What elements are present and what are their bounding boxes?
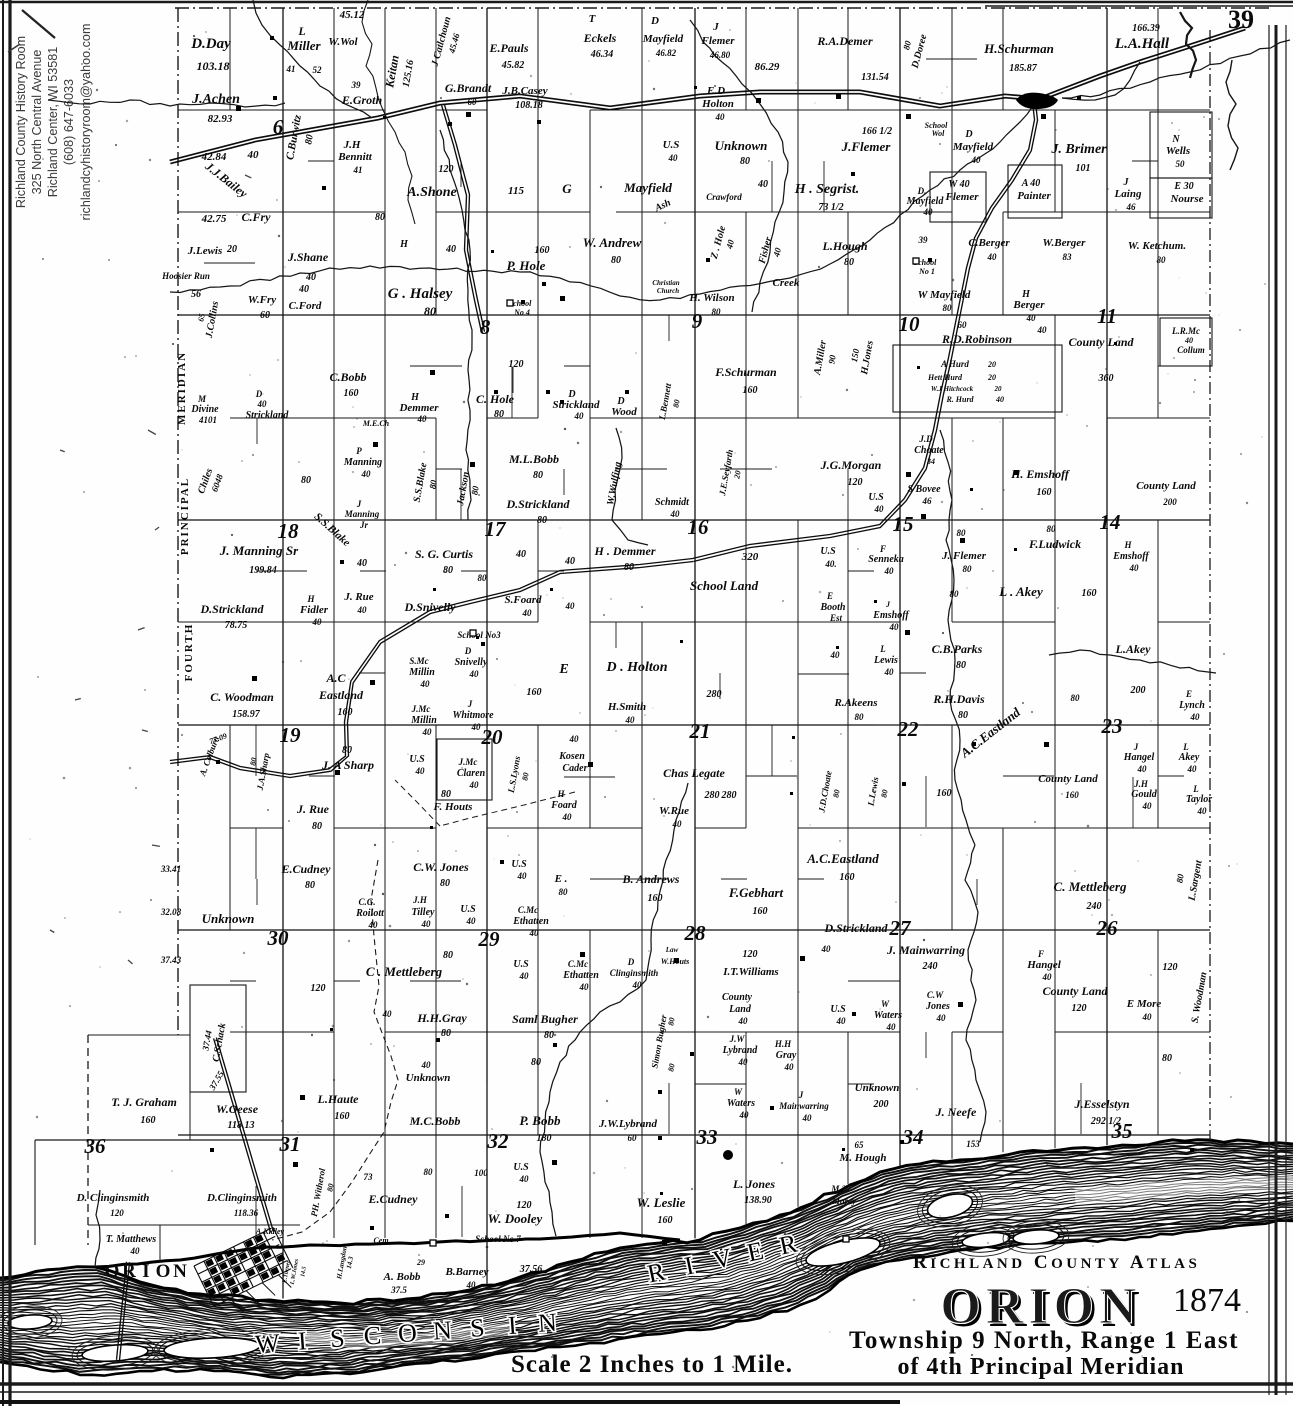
svg-text:F: F xyxy=(879,544,886,554)
svg-text:N: N xyxy=(1171,134,1180,145)
svg-text:Manning: Manning xyxy=(343,457,382,468)
svg-text:240: 240 xyxy=(922,961,938,972)
svg-text:D: D xyxy=(464,646,472,656)
svg-text:160: 160 xyxy=(648,893,663,904)
svg-text:J.W: J.W xyxy=(729,1034,746,1044)
svg-text:40: 40 xyxy=(672,819,683,829)
svg-text:80: 80 xyxy=(494,409,504,420)
svg-text:C. Hole: C. Hole xyxy=(476,392,515,406)
svg-text:40: 40 xyxy=(884,667,895,677)
svg-text:40: 40 xyxy=(1142,801,1153,811)
svg-text:Morey: Morey xyxy=(831,1196,857,1206)
svg-text:40.: 40. xyxy=(824,559,836,569)
svg-text:Wells: Wells xyxy=(1166,145,1190,157)
svg-text:PRINCIPAL: PRINCIPAL xyxy=(179,477,191,555)
svg-text:40: 40 xyxy=(368,920,379,930)
svg-text:46: 46 xyxy=(922,496,933,506)
svg-text:W. Ketchum.: W. Ketchum. xyxy=(1128,240,1186,252)
svg-text:Roilott: Roilott xyxy=(355,908,385,919)
svg-text:40: 40 xyxy=(569,734,580,744)
svg-text:Christian: Christian xyxy=(652,279,679,287)
svg-text:40: 40 xyxy=(738,1057,749,1067)
svg-text:160: 160 xyxy=(937,788,952,799)
svg-text:40: 40 xyxy=(312,617,323,627)
svg-text:F.Schurman: F.Schurman xyxy=(714,365,777,379)
svg-text:40: 40 xyxy=(836,1016,847,1026)
svg-text:80: 80 xyxy=(520,772,530,781)
svg-text:1874: 1874 xyxy=(1173,1282,1241,1319)
svg-text:W: W xyxy=(254,1328,281,1359)
svg-text:County Land: County Land xyxy=(1068,335,1134,349)
svg-text:40: 40 xyxy=(361,469,372,479)
svg-text:E: E xyxy=(826,591,833,601)
svg-text:Bennitt: Bennitt xyxy=(337,151,373,163)
svg-text:41: 41 xyxy=(286,64,296,74)
svg-text:46.80: 46.80 xyxy=(709,50,731,60)
svg-text:MERIDIAN: MERIDIAN xyxy=(176,351,188,425)
svg-text:M.C.Bobb: M.C.Bobb xyxy=(409,1114,461,1128)
svg-text:83: 83 xyxy=(1063,252,1073,262)
svg-text:Hangel: Hangel xyxy=(1123,752,1155,763)
svg-text:153: 153 xyxy=(966,1139,980,1149)
svg-text:M.L.Bobb: M.L.Bobb xyxy=(508,452,559,466)
svg-text:160: 160 xyxy=(535,245,550,256)
svg-text:W.J Hitchcock: W.J Hitchcock xyxy=(931,385,974,393)
svg-text:J: J xyxy=(798,1090,804,1100)
svg-text:80: 80 xyxy=(248,757,258,766)
svg-text:D.Strickland: D.Strickland xyxy=(505,497,570,511)
svg-text:10: 10 xyxy=(899,312,921,336)
svg-text:H: H xyxy=(306,594,315,604)
svg-text:30: 30 xyxy=(267,926,290,950)
svg-text:40: 40 xyxy=(522,608,533,618)
svg-text:J. Rue: J. Rue xyxy=(343,591,373,603)
svg-text:40: 40 xyxy=(670,509,681,519)
svg-text:40: 40 xyxy=(1137,764,1148,774)
svg-text:160: 160 xyxy=(1082,588,1097,599)
svg-text:N: N xyxy=(537,1308,558,1338)
svg-text:40: 40 xyxy=(1129,563,1140,573)
svg-text:FOURTH: FOURTH xyxy=(183,623,195,682)
svg-text:W 40: W 40 xyxy=(948,179,969,190)
svg-text:Saml Bugher: Saml Bugher xyxy=(512,1012,578,1026)
svg-text:120: 120 xyxy=(1072,1003,1087,1014)
svg-text:120: 120 xyxy=(439,164,454,175)
svg-text:L.Haute: L.Haute xyxy=(317,1092,360,1106)
svg-text:20: 20 xyxy=(994,385,1003,393)
svg-text:Strickland: Strickland xyxy=(246,410,290,421)
svg-text:80: 80 xyxy=(957,528,967,538)
svg-text:E .: E . xyxy=(554,873,568,885)
svg-text:F: F xyxy=(1037,949,1044,959)
svg-text:80: 80 xyxy=(305,880,315,891)
svg-text:160: 160 xyxy=(338,707,353,718)
svg-text:46: 46 xyxy=(1126,202,1137,212)
svg-text:Law: Law xyxy=(665,946,679,954)
svg-text:180: 180 xyxy=(537,1133,552,1144)
svg-text:A.Kidley: A.Kidley xyxy=(255,1227,285,1236)
svg-text:6: 6 xyxy=(273,115,284,139)
svg-text:L: L xyxy=(1182,742,1189,752)
svg-text:RICHLAND COUNTY ATLAS: RICHLAND COUNTY ATLAS xyxy=(913,1252,1200,1273)
svg-text:15: 15 xyxy=(893,512,914,536)
svg-text:U.S: U.S xyxy=(409,754,425,765)
svg-text:199.84: 199.84 xyxy=(249,565,277,576)
svg-text:101: 101 xyxy=(1076,163,1091,174)
svg-text:Gray: Gray xyxy=(776,1050,797,1061)
svg-text:80: 80 xyxy=(342,745,352,756)
svg-text:W Mayfield: W Mayfield xyxy=(918,289,971,301)
svg-text:60: 60 xyxy=(260,310,270,321)
svg-text:45.12: 45.12 xyxy=(339,9,365,21)
svg-text:80: 80 xyxy=(443,950,453,961)
svg-text:O: O xyxy=(156,1261,171,1282)
svg-text:86.29: 86.29 xyxy=(755,61,780,73)
svg-text:80: 80 xyxy=(441,789,451,800)
svg-text:richlandcyhistoryroom@yahoo.co: richlandcyhistoryroom@yahoo.com xyxy=(79,24,93,221)
svg-text:34: 34 xyxy=(926,457,935,466)
svg-text:26: 26 xyxy=(1096,916,1119,940)
svg-text:28: 28 xyxy=(684,921,707,945)
svg-text:80: 80 xyxy=(559,887,569,897)
svg-text:School No3: School No3 xyxy=(457,630,501,640)
svg-text:Kosen: Kosen xyxy=(558,751,585,762)
svg-text:D.Snivelly: D.Snivelly xyxy=(404,600,457,614)
svg-text:40: 40 xyxy=(632,980,643,990)
svg-text:J: J xyxy=(467,699,473,709)
svg-text:J.H: J.H xyxy=(1133,779,1149,789)
svg-text:Cader: Cader xyxy=(563,763,588,774)
svg-text:Divine: Divine xyxy=(190,404,219,415)
svg-text:60: 60 xyxy=(958,320,968,330)
svg-text:40: 40 xyxy=(574,411,585,421)
svg-text:32.08: 32.08 xyxy=(160,907,182,917)
svg-text:U.S: U.S xyxy=(820,546,836,557)
svg-text:H.H.Gray: H.H.Gray xyxy=(416,1011,467,1025)
svg-text:J.Flemer: J.Flemer xyxy=(841,139,892,154)
svg-text:325 North Central Avenue: 325 North Central Avenue xyxy=(30,50,44,195)
svg-text:65: 65 xyxy=(855,1140,865,1150)
svg-text:40: 40 xyxy=(469,780,480,790)
svg-text:120: 120 xyxy=(311,983,326,994)
svg-text:80: 80 xyxy=(424,1167,434,1177)
svg-text:118.13: 118.13 xyxy=(228,1120,255,1131)
svg-text:33: 33 xyxy=(696,1125,718,1149)
svg-text:Mayfield: Mayfield xyxy=(906,196,945,207)
svg-text:Mayfield: Mayfield xyxy=(642,33,684,45)
svg-text:40: 40 xyxy=(305,272,316,283)
svg-text:Strickland: Strickland xyxy=(552,399,600,411)
svg-text:40: 40 xyxy=(529,928,540,938)
svg-text:G . Halsey: G . Halsey xyxy=(388,286,453,302)
svg-text:82.93: 82.93 xyxy=(208,113,233,125)
svg-text:37.5: 37.5 xyxy=(390,1285,407,1295)
svg-text:U.S: U.S xyxy=(511,859,527,870)
svg-text:Est: Est xyxy=(829,613,843,623)
svg-text:Hoosier Run: Hoosier Run xyxy=(161,271,210,281)
svg-text:Waters: Waters xyxy=(727,1098,755,1109)
svg-text:D.Strickland: D.Strickland xyxy=(823,921,888,935)
svg-text:E: E xyxy=(1185,689,1192,699)
svg-text:360: 360 xyxy=(1098,373,1114,384)
svg-text:Mainwarring: Mainwarring xyxy=(778,1101,829,1111)
svg-text:L: L xyxy=(297,24,305,38)
svg-text:Jr: Jr xyxy=(359,520,369,530)
svg-text:33.41: 33.41 xyxy=(160,864,181,874)
svg-text:Unknown: Unknown xyxy=(406,1072,451,1084)
svg-text:No 1: No 1 xyxy=(918,267,935,276)
svg-text:40: 40 xyxy=(625,715,636,725)
svg-text:40: 40 xyxy=(784,1062,795,1072)
svg-text:80: 80 xyxy=(740,156,750,167)
svg-text:160: 160 xyxy=(753,906,768,917)
svg-text:45.82: 45.82 xyxy=(501,60,525,71)
svg-text:D . Holton: D . Holton xyxy=(605,660,667,675)
svg-text:J.Esselstyn: J.Esselstyn xyxy=(1073,1097,1129,1111)
svg-text:Manning: Manning xyxy=(344,509,380,519)
svg-text:Eastland: Eastland xyxy=(318,688,364,702)
svg-text:Richland Center, WI 53581: Richland Center, WI 53581 xyxy=(46,47,60,198)
svg-text:280: 280 xyxy=(704,790,720,801)
svg-text:School No 7: School No 7 xyxy=(475,1234,521,1244)
svg-text:80: 80 xyxy=(855,712,865,722)
svg-text:Claren: Claren xyxy=(457,768,486,779)
svg-text:40: 40 xyxy=(668,153,679,163)
svg-text:40: 40 xyxy=(298,284,309,295)
svg-text:Lybrand: Lybrand xyxy=(722,1045,759,1056)
svg-text:E.Groth: E.Groth xyxy=(341,93,383,107)
svg-text:40: 40 xyxy=(357,605,368,615)
svg-text:No 4: No 4 xyxy=(513,308,530,317)
svg-text:120: 120 xyxy=(848,477,863,488)
svg-text:U.S: U.S xyxy=(868,492,884,503)
svg-text:16: 16 xyxy=(688,515,710,539)
svg-text:80: 80 xyxy=(963,564,973,574)
svg-text:Painter: Painter xyxy=(1017,190,1051,202)
svg-text:80: 80 xyxy=(958,710,968,721)
svg-text:D.Strickland: D.Strickland xyxy=(199,602,264,616)
svg-text:40: 40 xyxy=(884,566,895,576)
svg-text:J. Brimer: J. Brimer xyxy=(1050,142,1107,157)
svg-text:J.H: J.H xyxy=(412,895,428,905)
svg-text:S: S xyxy=(329,1323,345,1353)
svg-text:40: 40 xyxy=(802,1113,813,1123)
svg-text:H.H: H.H xyxy=(774,1039,792,1049)
svg-text:S.Mc: S.Mc xyxy=(409,656,428,666)
svg-text:Hett Hurd: Hett Hurd xyxy=(927,373,963,382)
svg-text:80: 80 xyxy=(531,1057,541,1068)
svg-text:U.S: U.S xyxy=(460,904,476,915)
svg-text:T. J. Graham: T. J. Graham xyxy=(111,1095,177,1109)
svg-text:40: 40 xyxy=(821,944,832,954)
svg-text:Berger: Berger xyxy=(1012,299,1045,311)
svg-text:Ethatten: Ethatten xyxy=(512,916,549,927)
svg-text:A 40: A 40 xyxy=(1021,178,1041,189)
svg-text:Scale 2 Inches to 1 Mile.: Scale 2 Inches to 1 Mile. xyxy=(511,1351,793,1378)
svg-text:80: 80 xyxy=(544,1030,554,1041)
svg-text:C.G.: C.G. xyxy=(358,897,375,907)
svg-text:H. Emshoff: H. Emshoff xyxy=(1010,467,1070,481)
svg-text:P. Hole: P. Hole xyxy=(507,258,546,273)
svg-text:65: 65 xyxy=(196,313,206,322)
svg-text:29: 29 xyxy=(478,927,501,951)
svg-text:80: 80 xyxy=(666,1017,676,1026)
svg-text:80: 80 xyxy=(312,821,322,832)
svg-text:40: 40 xyxy=(923,207,934,217)
svg-text:E.Cudney: E.Cudney xyxy=(280,862,331,876)
svg-text:J. Neefe: J. Neefe xyxy=(935,1105,977,1119)
svg-text:80: 80 xyxy=(537,515,547,526)
svg-text:R. Hurd: R. Hurd xyxy=(945,395,974,404)
svg-text:40: 40 xyxy=(757,179,768,190)
svg-text:Emshoff: Emshoff xyxy=(1112,551,1150,562)
svg-text:Township 9 North, Range 1 East: Township 9 North, Range 1 East xyxy=(849,1327,1239,1354)
svg-text:R.Akeens: R.Akeens xyxy=(833,697,877,709)
svg-text:Land: Land xyxy=(728,1004,752,1015)
svg-text:40: 40 xyxy=(739,1110,750,1120)
svg-text:Eckels: Eckels xyxy=(583,31,617,45)
svg-text:73: 73 xyxy=(364,1172,374,1182)
svg-text:80: 80 xyxy=(831,789,841,798)
svg-text:138.90: 138.90 xyxy=(744,1195,772,1206)
svg-text:N: N xyxy=(173,1261,187,1282)
svg-text:L: L xyxy=(1192,784,1199,794)
svg-text:W: W xyxy=(881,999,890,1009)
svg-text:80: 80 xyxy=(441,1028,451,1039)
svg-text:32: 32 xyxy=(487,1129,510,1153)
svg-text:118.36: 118.36 xyxy=(234,1208,259,1218)
svg-text:80: 80 xyxy=(440,878,450,889)
svg-text:H.Schurman: H.Schurman xyxy=(983,41,1054,56)
svg-text:C.Bobb: C.Bobb xyxy=(329,370,366,384)
svg-text:W.Wol: W.Wol xyxy=(328,36,358,48)
svg-text:J. Rue: J. Rue xyxy=(296,802,330,816)
svg-text:39: 39 xyxy=(351,80,362,90)
svg-text:C . Mettleberg: C . Mettleberg xyxy=(366,964,443,979)
svg-text:80: 80 xyxy=(325,1183,335,1192)
svg-text:G.Brandt: G.Brandt xyxy=(445,81,492,95)
svg-text:D.Clinginsmith: D.Clinginsmith xyxy=(206,1192,277,1204)
svg-text:80: 80 xyxy=(478,573,488,583)
svg-text:Snivelly: Snivelly xyxy=(455,657,488,668)
svg-text:S Bovee: S Bovee xyxy=(907,484,941,495)
svg-text:40: 40 xyxy=(517,871,528,881)
svg-text:160: 160 xyxy=(840,872,855,883)
svg-text:B.Barney: B.Barney xyxy=(444,1266,488,1278)
svg-text:C.Ford: C.Ford xyxy=(289,300,322,312)
svg-text:L. Jones: L. Jones xyxy=(732,1177,775,1191)
svg-text:Waters: Waters xyxy=(874,1010,902,1021)
svg-text:40: 40 xyxy=(564,556,575,567)
svg-text:40: 40 xyxy=(1197,806,1208,816)
svg-text:200: 200 xyxy=(1162,497,1177,507)
svg-text:Church: Church xyxy=(657,287,679,295)
svg-text:9: 9 xyxy=(692,309,703,333)
svg-text:A.Shone: A.Shone xyxy=(406,185,456,200)
svg-text:R: R xyxy=(122,1261,136,1282)
svg-text:Fidler: Fidler xyxy=(299,604,329,616)
svg-text:80: 80 xyxy=(424,304,436,318)
svg-text:80: 80 xyxy=(303,134,316,146)
svg-text:40: 40 xyxy=(971,155,982,165)
svg-text:131.54: 131.54 xyxy=(861,72,889,83)
svg-text:J.Shane: J.Shane xyxy=(287,250,329,264)
svg-text:280: 280 xyxy=(706,689,722,700)
svg-text:J.B.Casey: J.B.Casey xyxy=(501,85,547,97)
svg-text:M.E.Ch: M.E.Ch xyxy=(362,419,390,428)
svg-text:40: 40 xyxy=(579,982,590,992)
svg-text:County Land: County Land xyxy=(1038,773,1098,785)
svg-text:J. A Sharp: J. A Sharp xyxy=(321,758,374,772)
svg-text:160: 160 xyxy=(658,1215,673,1226)
svg-text:100: 100 xyxy=(474,1168,488,1178)
svg-text:40: 40 xyxy=(471,722,482,732)
svg-text:56: 56 xyxy=(191,289,201,300)
svg-text:40: 40 xyxy=(466,916,477,926)
svg-text:Laing: Laing xyxy=(1114,188,1142,200)
svg-text:Unknown: Unknown xyxy=(202,911,255,926)
svg-text:40: 40 xyxy=(421,1060,432,1070)
svg-text:C.Fry: C.Fry xyxy=(241,210,271,224)
svg-text:120: 120 xyxy=(743,949,758,960)
svg-text:D.Day: D.Day xyxy=(190,36,231,52)
svg-text:185.87: 185.87 xyxy=(1009,63,1038,74)
svg-text:E: E xyxy=(558,662,568,677)
svg-text:40: 40 xyxy=(519,1174,530,1184)
svg-text:A.C.Eastland: A.C.Eastland xyxy=(806,851,879,866)
svg-text:Flemer: Flemer xyxy=(701,35,736,47)
svg-text:39: 39 xyxy=(918,235,929,245)
svg-text:Millin: Millin xyxy=(410,715,437,726)
svg-text:C.Mc: C.Mc xyxy=(518,905,538,915)
svg-text:80: 80 xyxy=(533,470,543,481)
svg-text:(608) 647-6033: (608) 647-6033 xyxy=(62,79,76,165)
svg-text:U.S: U.S xyxy=(830,1004,846,1015)
svg-text:N: N xyxy=(432,1315,453,1345)
svg-text:Mayfield: Mayfield xyxy=(623,180,672,195)
svg-text:20: 20 xyxy=(226,244,237,255)
svg-text:S: S xyxy=(469,1313,485,1343)
svg-text:of 4th Principal Meridian: of 4th Principal Meridian xyxy=(898,1354,1185,1380)
svg-text:J: J xyxy=(1133,742,1139,752)
svg-text:H: H xyxy=(399,239,409,250)
svg-text:120: 120 xyxy=(517,1200,532,1211)
svg-text:80: 80 xyxy=(1157,255,1167,265)
svg-text:Creek: Creek xyxy=(773,277,800,289)
svg-text:C.W: C.W xyxy=(927,990,944,1000)
svg-text:Booth: Booth xyxy=(819,602,845,613)
svg-text:18: 18 xyxy=(278,519,300,543)
svg-text:S.Foard: S.Foard xyxy=(505,594,542,606)
svg-text:Mayfield: Mayfield xyxy=(952,141,994,153)
svg-text:46.82: 46.82 xyxy=(655,48,677,58)
svg-text:22: 22 xyxy=(897,717,920,741)
svg-text:20: 20 xyxy=(987,360,996,369)
svg-text:Collum: Collum xyxy=(1177,345,1205,355)
svg-text:27: 27 xyxy=(889,916,913,940)
svg-text:80: 80 xyxy=(301,475,311,486)
svg-text:120: 120 xyxy=(1163,962,1178,973)
svg-text:Lewis: Lewis xyxy=(873,655,898,666)
svg-text:160: 160 xyxy=(1037,487,1052,498)
svg-text:37.43: 37.43 xyxy=(160,955,182,965)
svg-text:L.R.Mc: L.R.Mc xyxy=(1171,326,1200,336)
svg-text:80: 80 xyxy=(611,255,621,266)
svg-text:R.H.Davis: R.H.Davis xyxy=(932,692,985,706)
svg-text:O: O xyxy=(105,1261,120,1282)
svg-text:60: 60 xyxy=(468,97,478,107)
svg-text:A. Bobb: A. Bobb xyxy=(383,1271,421,1283)
